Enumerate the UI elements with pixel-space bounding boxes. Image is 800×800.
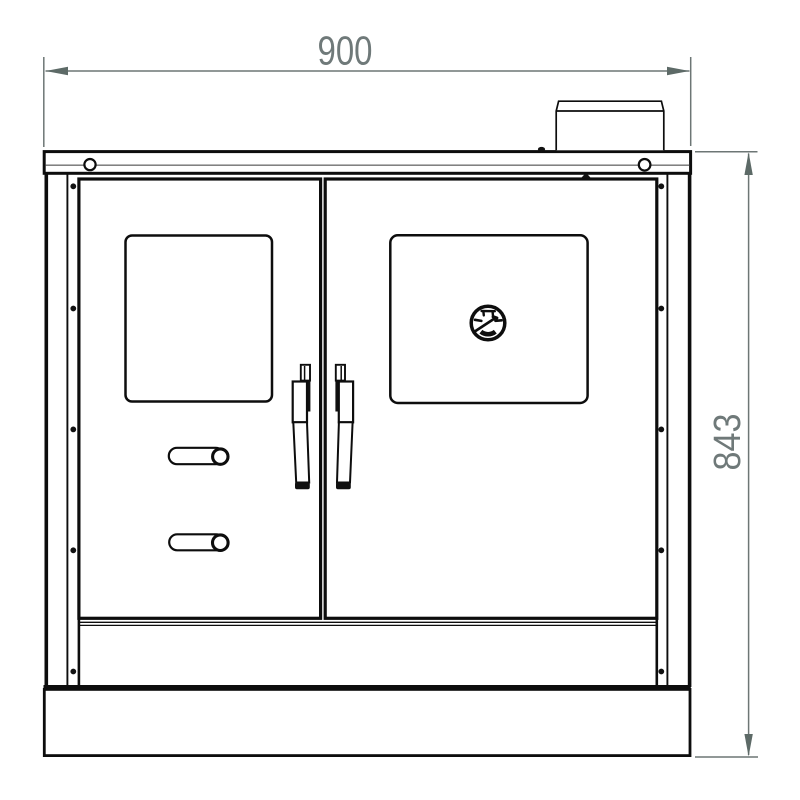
- svg-text:900: 900: [318, 28, 373, 74]
- svg-text:843: 843: [707, 414, 749, 471]
